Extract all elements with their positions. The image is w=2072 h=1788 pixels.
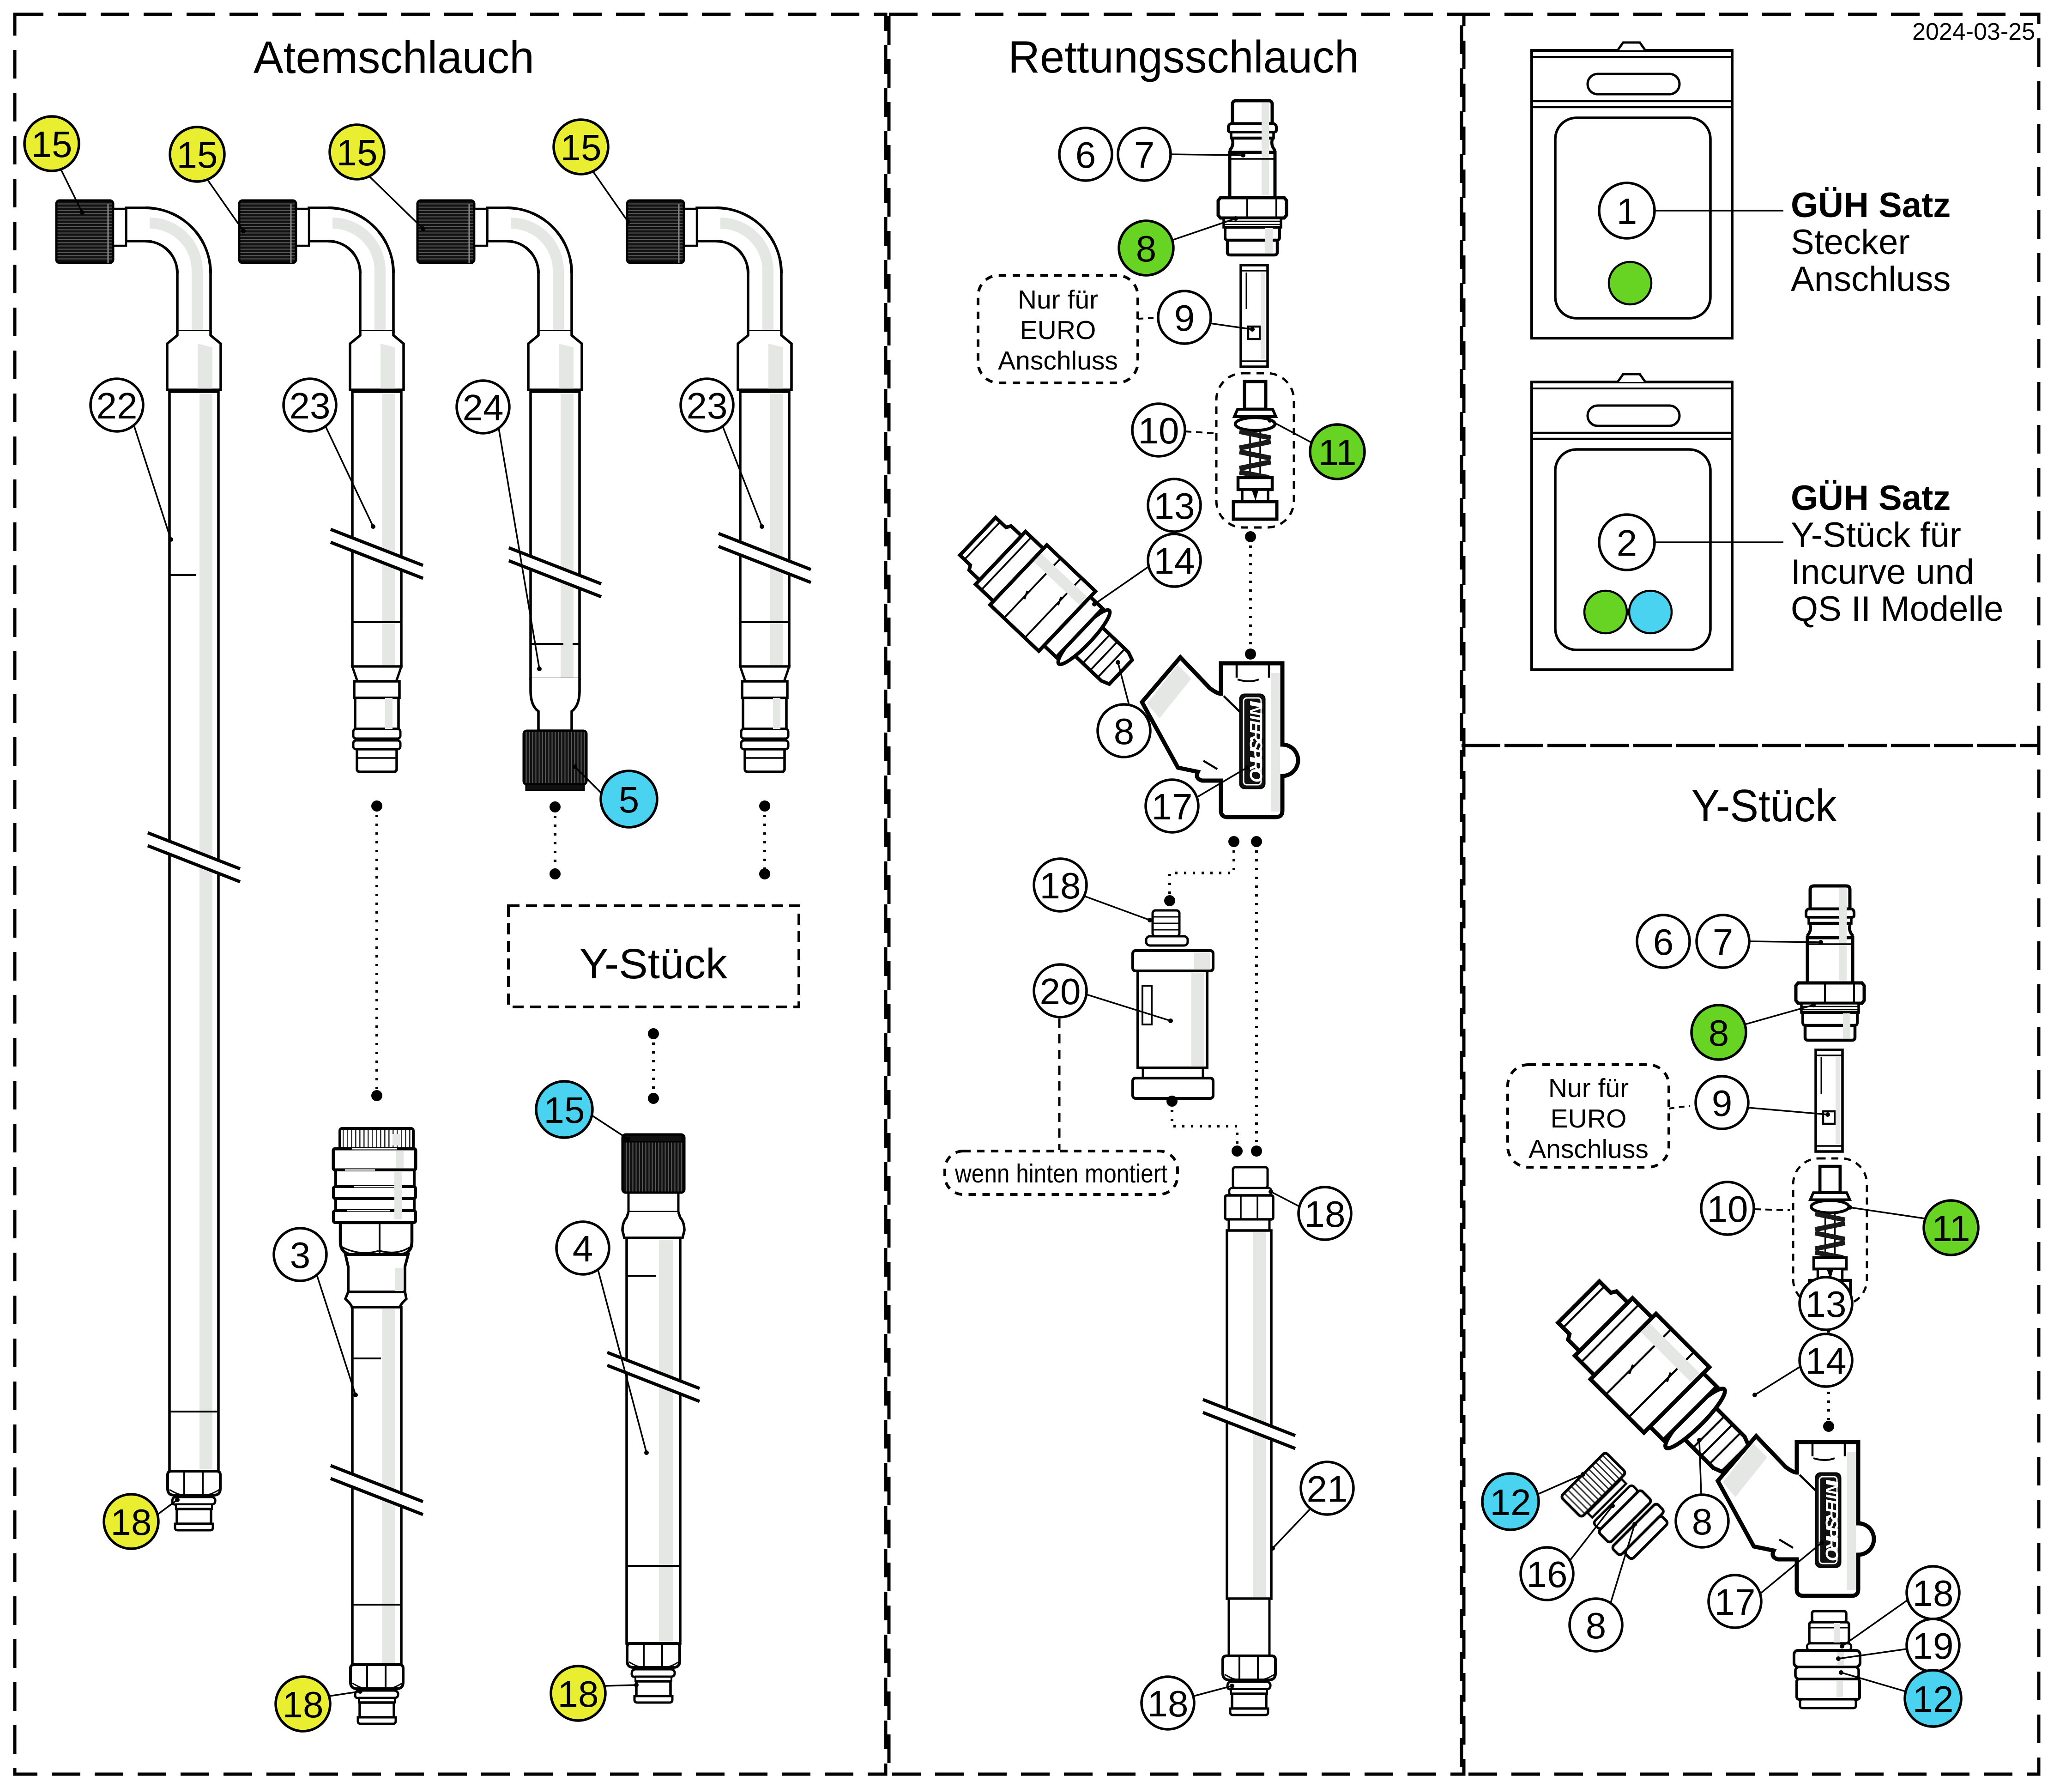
svg-text:13: 13	[1154, 485, 1195, 527]
svg-text:8: 8	[1136, 228, 1157, 269]
svg-text:21: 21	[1307, 1468, 1348, 1509]
svg-text:14: 14	[1154, 540, 1195, 582]
svg-text:6: 6	[1653, 921, 1674, 963]
svg-text:18: 18	[111, 1502, 152, 1543]
svg-text:7: 7	[1713, 921, 1734, 963]
svg-text:18: 18	[558, 1673, 599, 1715]
svg-text:Y-Stück: Y-Stück	[1691, 780, 1837, 831]
svg-text:17: 17	[1152, 786, 1193, 827]
svg-text:15: 15	[31, 124, 72, 165]
svg-text:9: 9	[1712, 1083, 1733, 1124]
svg-text:Y-Stück: Y-Stück	[580, 940, 728, 988]
svg-text:7: 7	[1134, 134, 1155, 176]
svg-text:8: 8	[1709, 1012, 1729, 1054]
svg-text:12: 12	[1913, 1679, 1954, 1720]
svg-text:EURO: EURO	[1020, 315, 1096, 345]
svg-text:16: 16	[1527, 1554, 1568, 1595]
svg-text:Anschluss: Anschluss	[1791, 260, 1951, 299]
svg-text:8: 8	[1692, 1501, 1713, 1542]
svg-text:15: 15	[337, 132, 378, 173]
svg-text:24: 24	[463, 387, 504, 428]
svg-text:11: 11	[1932, 1208, 1970, 1249]
svg-text:20: 20	[1040, 971, 1081, 1012]
svg-text:Nur für: Nur für	[1548, 1073, 1629, 1103]
svg-text:QS II Modelle: QS II Modelle	[1791, 589, 2003, 629]
svg-text:1: 1	[1617, 191, 1637, 232]
svg-text:18: 18	[1305, 1194, 1346, 1235]
svg-text:15: 15	[544, 1090, 585, 1131]
svg-text:3: 3	[290, 1235, 311, 1276]
svg-text:15: 15	[561, 127, 602, 168]
svg-text:wenn hinten montiert: wenn hinten montiert	[954, 1159, 1167, 1188]
svg-text:4: 4	[573, 1228, 593, 1269]
svg-text:Nur für: Nur für	[1018, 285, 1098, 315]
svg-text:18: 18	[1040, 865, 1081, 906]
svg-text:EURO: EURO	[1551, 1104, 1627, 1133]
svg-text:17: 17	[1715, 1582, 1756, 1623]
svg-text:8: 8	[1114, 711, 1135, 752]
svg-text:14: 14	[1806, 1340, 1847, 1382]
svg-text:Incurve und: Incurve und	[1791, 552, 1974, 592]
svg-text:12: 12	[1490, 1482, 1531, 1523]
svg-text:Stecker: Stecker	[1791, 223, 1910, 262]
svg-text:22: 22	[97, 385, 138, 426]
svg-text:GÜH Satz: GÜH Satz	[1791, 479, 1951, 518]
svg-text:15: 15	[177, 134, 218, 176]
svg-text:Y-Stück für: Y-Stück für	[1791, 515, 1961, 555]
svg-text:23: 23	[687, 385, 728, 426]
svg-text:2: 2	[1617, 522, 1637, 564]
svg-text:18: 18	[283, 1684, 324, 1725]
svg-text:10: 10	[1707, 1188, 1748, 1230]
svg-text:GÜH Satz: GÜH Satz	[1791, 186, 1951, 225]
svg-text:5: 5	[619, 779, 640, 820]
svg-text:Anschluss: Anschluss	[998, 346, 1118, 376]
svg-text:11: 11	[1318, 432, 1356, 473]
svg-text:10: 10	[1138, 410, 1179, 451]
svg-text:9: 9	[1174, 297, 1195, 339]
svg-text:18: 18	[1148, 1683, 1189, 1724]
svg-text:13: 13	[1806, 1284, 1847, 1325]
svg-text:Rettungsschlauch: Rettungsschlauch	[1008, 31, 1359, 82]
svg-text:2024-03-25: 2024-03-25	[1912, 18, 2035, 45]
svg-text:Anschluss: Anschluss	[1528, 1134, 1649, 1164]
svg-text:Atemschlauch: Atemschlauch	[254, 32, 534, 83]
svg-text:23: 23	[290, 385, 331, 426]
svg-text:18: 18	[1913, 1573, 1954, 1614]
svg-text:8: 8	[1586, 1605, 1607, 1646]
svg-text:6: 6	[1075, 134, 1096, 176]
svg-text:19: 19	[1913, 1625, 1954, 1667]
